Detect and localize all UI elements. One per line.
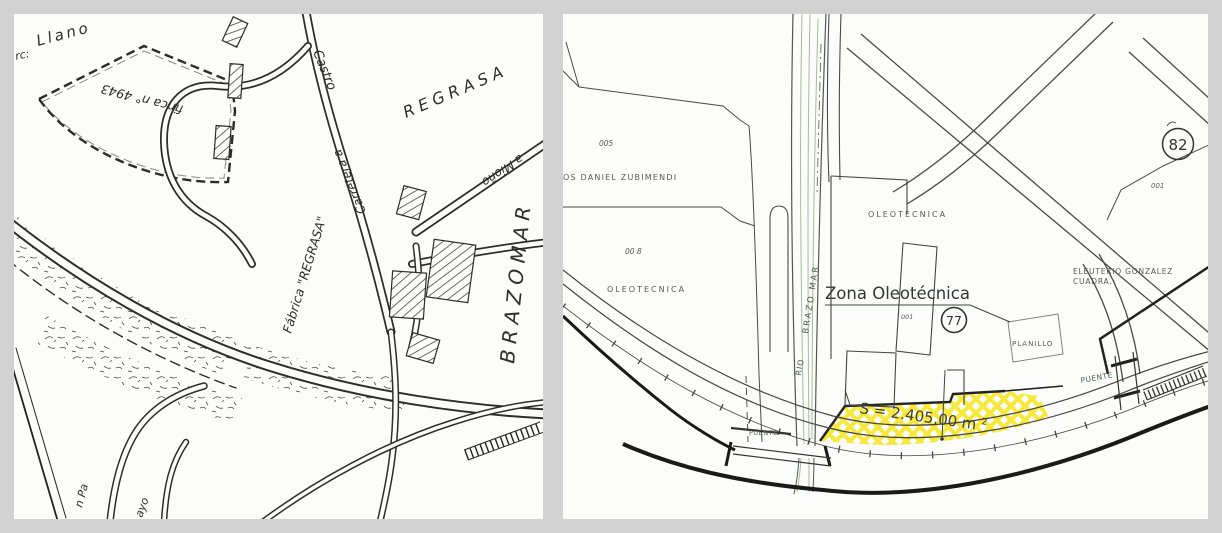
plot-number-circle: 77 <box>942 308 967 333</box>
label-owner-gonzalez-1: ELEUTERIO GONZALEZ <box>1073 267 1173 276</box>
label-fragment-campa: n Pa <box>72 482 91 509</box>
upper-roads <box>847 14 1208 382</box>
label-rio: RIO <box>794 358 806 377</box>
bridge-right <box>1111 352 1207 410</box>
label-planillo: PLANILLO <box>1012 340 1053 348</box>
label-a-miono: a Mioño <box>479 152 526 190</box>
right-map-panel: 77 82 005 OS DANIEL ZUBIMENDI 00 8 OLEOT… <box>563 14 1208 519</box>
left-map-drawing: rc: Llano finca n° 4943 REGRASA Castro C… <box>14 14 543 519</box>
label-fragment-ayo: ayo <box>133 496 152 519</box>
label-brazomar: BRAZOMAR <box>495 199 536 364</box>
label-fabrica-regrasa: Fábrica "REGRASA" <box>280 214 330 334</box>
finca-parcel-boundary <box>39 46 235 182</box>
bridge-hatch-strip <box>464 422 543 460</box>
label-oleotecnica-left: OLEOTECNICA <box>607 285 686 294</box>
bridge-left <box>731 428 831 466</box>
label-oleotecnica-mid: OLEOTECNICA <box>868 210 947 219</box>
river <box>746 14 841 494</box>
thick-parcel-boundary <box>1100 264 1208 374</box>
label-parcel-001-mid: 001 <box>901 313 913 321</box>
label-llano-prefix: rc: <box>14 47 31 63</box>
label-parcel-001-top: 001 <box>1151 182 1164 190</box>
label-owner-zubimendi: OS DANIEL ZUBIMENDI <box>563 173 677 182</box>
label-owner-gonzalez-2: CUADRA.- <box>1073 277 1116 286</box>
zona-underline <box>825 305 1010 322</box>
label-puente-left: PUENTE <box>749 429 778 437</box>
sheet-number-text: 82 <box>1168 136 1187 154</box>
label-zona-oleotecnica: Zona Oleotécnica <box>825 284 970 303</box>
label-carretera-a: Carretera a <box>330 147 369 216</box>
label-llano: Llano <box>34 18 92 50</box>
right-map-drawing: 77 82 005 OS DANIEL ZUBIMENDI 00 8 OLEOT… <box>563 14 1208 519</box>
label-regrasa-parcel: REGRASA <box>400 61 510 122</box>
label-puente-right: PUENTE <box>1080 370 1114 385</box>
plot-number-text: 77 <box>946 313 962 328</box>
label-parcel-008: 00 8 <box>625 247 642 256</box>
label-brazo-mar: BRAZO MAR <box>801 264 822 334</box>
parcel-boundaries <box>563 42 762 442</box>
left-map-panel: rc: Llano finca n° 4943 REGRASA Castro C… <box>14 14 543 519</box>
label-parcel-005: 005 <box>599 139 614 148</box>
